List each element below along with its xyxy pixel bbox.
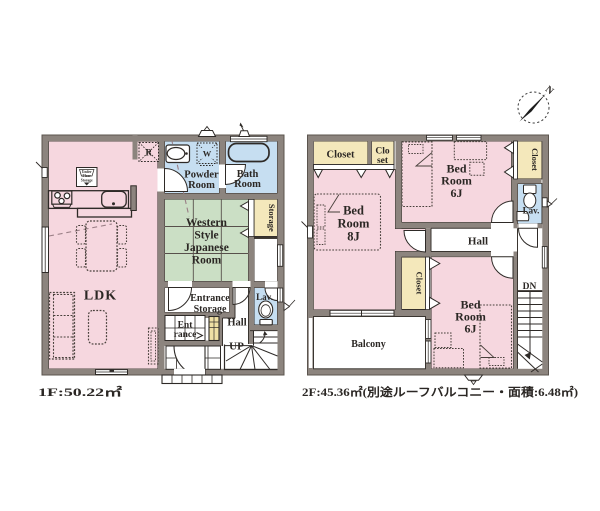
svg-text:Closet: Closet — [415, 272, 425, 295]
svg-text:Storage: Storage — [81, 178, 93, 182]
svg-text:8J: 8J — [347, 230, 360, 244]
svg-text:1F:50.22㎡: 1F:50.22㎡ — [38, 385, 123, 399]
svg-text:Ent: Ent — [178, 321, 194, 331]
svg-text:Storage: Storage — [194, 304, 227, 315]
svg-text:Hall: Hall — [468, 236, 488, 248]
svg-text:Closet: Closet — [530, 148, 540, 171]
svg-text:W: W — [203, 149, 212, 159]
svg-text:Room: Room — [188, 180, 215, 191]
svg-text:Powder: Powder — [184, 170, 219, 181]
svg-text:Japanese: Japanese — [184, 242, 229, 254]
svg-text:Room: Room — [192, 255, 222, 267]
svg-text:Hall: Hall — [227, 318, 246, 329]
svg-text:Balcony: Balcony — [351, 339, 385, 350]
svg-text:Lav.: Lav. — [523, 206, 540, 216]
svg-text:Room: Room — [338, 217, 371, 231]
svg-text:2F:45.36㎡(別途ルーフバルコニー・面積:6.48㎡): 2F:45.36㎡(別途ルーフバルコニー・面積:6.48㎡) — [302, 385, 578, 399]
svg-text:Lav.: Lav. — [256, 292, 273, 302]
svg-text:set: set — [377, 156, 389, 166]
svg-text:Style: Style — [194, 230, 218, 242]
svg-text:rance: rance — [174, 330, 197, 340]
svg-text:Entrance: Entrance — [190, 293, 230, 304]
svg-text:R: R — [145, 148, 152, 158]
svg-text:LDK: LDK — [84, 289, 117, 304]
svg-text:Storage: Storage — [267, 204, 277, 232]
svg-text:6J: 6J — [465, 322, 477, 336]
svg-text:Room: Room — [234, 179, 261, 190]
svg-text:UP: UP — [229, 341, 244, 353]
svg-text:6J: 6J — [451, 186, 463, 200]
svg-text:Closet: Closet — [327, 150, 355, 161]
svg-text:Western: Western — [186, 217, 227, 229]
svg-text:Clo: Clo — [375, 147, 390, 157]
svg-text:Bed: Bed — [343, 204, 364, 218]
